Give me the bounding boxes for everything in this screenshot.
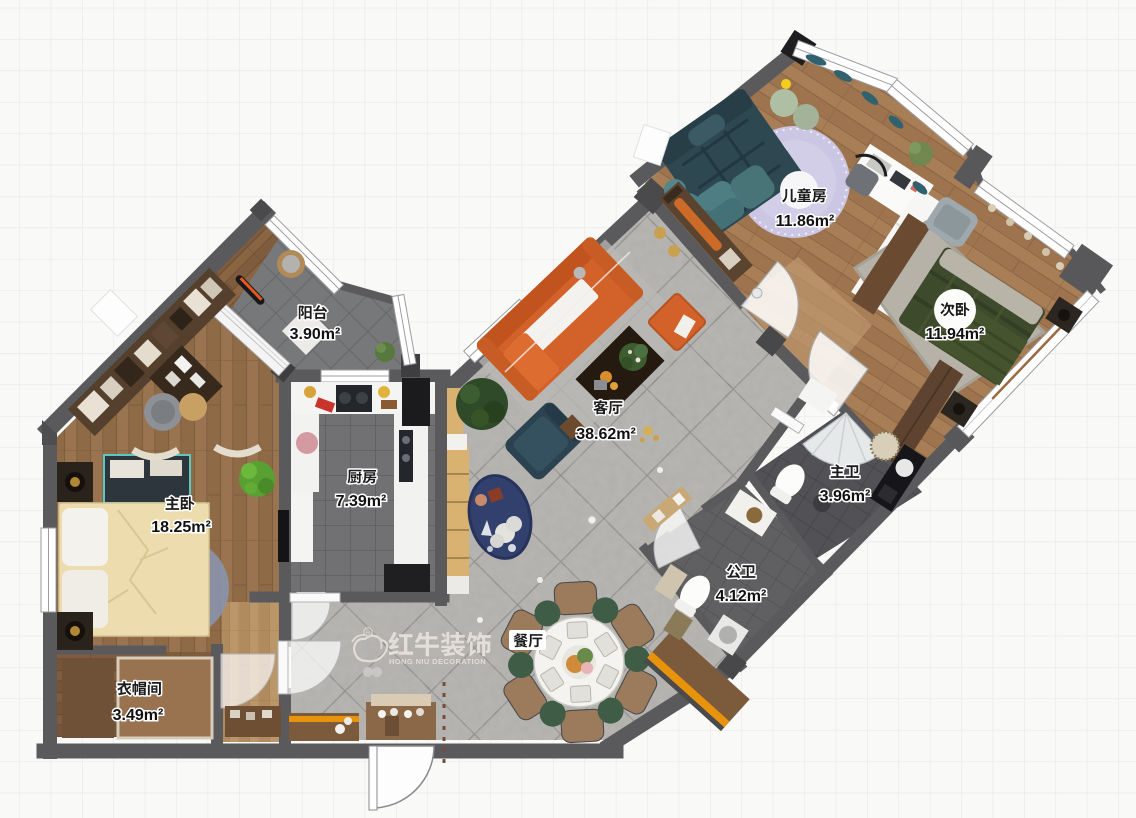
svg-text:3.96m²: 3.96m² [820,488,871,505]
svg-text:4.12m²: 4.12m² [716,588,767,605]
svg-text:7.39m²: 7.39m² [336,493,387,510]
svg-text:18.25m²: 18.25m² [151,519,211,536]
svg-text:HONG NIU DECORATION: HONG NIU DECORATION [389,657,486,666]
svg-text:11.94m²: 11.94m² [926,326,985,343]
svg-text:38.62m²: 38.62m² [576,426,636,443]
svg-text:11.86m²: 11.86m² [776,213,835,230]
svg-text:R: R [366,631,371,637]
svg-text:3.49m²: 3.49m² [113,707,164,724]
svg-text:3.90m²: 3.90m² [290,326,341,343]
